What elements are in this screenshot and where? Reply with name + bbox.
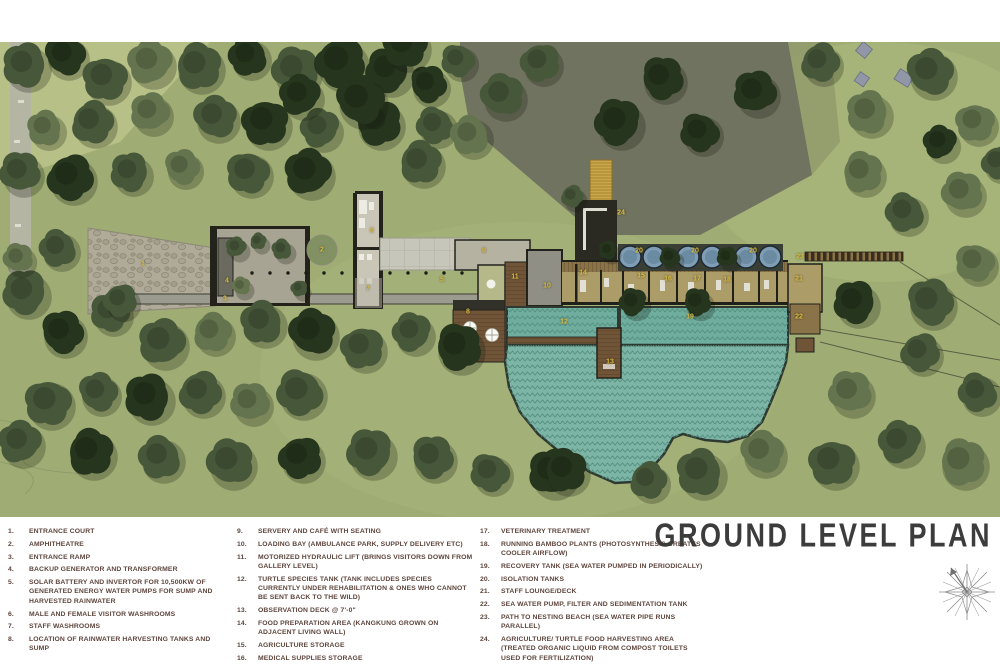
legend-item-text: AMPHITHEATRE — [29, 540, 230, 549]
legend-item-number: 11. — [237, 553, 258, 572]
legend-item-number: 15. — [237, 641, 258, 650]
legend-item: 2.AMPHITHEATRE — [8, 540, 230, 549]
legend-item: 14.FOOD PREPARATION AREA (KANGKUNG GROWN… — [237, 619, 475, 638]
legend-item-text: STAFF WASHROOMS — [29, 622, 230, 631]
legend-item-text: RECOVERY TANK (SEA WATER PUMPED IN PERIO… — [501, 562, 708, 571]
legend-item: 16.MEDICAL SUPPLIES STORAGE — [237, 654, 475, 663]
legend-item-number: 18. — [480, 540, 501, 559]
legend-item-number: 19. — [480, 562, 501, 571]
legend-item-number: 16. — [237, 654, 258, 663]
legend-item-text: BACKUP GENERATOR AND TRANSFORMER — [29, 565, 230, 574]
legend-item-number: 9. — [237, 527, 258, 536]
legend-item-text: SOLAR BATTERY AND INVERTOR FOR 10,500KW … — [29, 578, 230, 606]
legend-item-text: ENTRANCE COURT — [29, 527, 230, 536]
legend-item-number: 2. — [8, 540, 29, 549]
legend-item: 5.SOLAR BATTERY AND INVERTOR FOR 10,500K… — [8, 578, 230, 606]
legend-item-text: OBSERVATION DECK @ 7'-0" — [258, 606, 475, 615]
legend-item-text: MOTORIZED HYDRAULIC LIFT (BRINGS VISITOR… — [258, 553, 475, 572]
legend-item-text: MEDICAL SUPPLIES STORAGE — [258, 654, 475, 663]
legend-item-text: ENTRANCE RAMP — [29, 553, 230, 562]
legend-item-text: MALE AND FEMALE VISITOR WASHROOMS — [29, 610, 230, 619]
legend-item: 24.AGRICULTURE/ TURTLE FOOD HARVESTING A… — [480, 635, 708, 663]
page-title: GROUND LEVEL PLAN — [654, 517, 992, 555]
legend-item-number: 14. — [237, 619, 258, 638]
legend-item-text: AGRICULTURE STORAGE — [258, 641, 475, 650]
legend-item-number: 4. — [8, 565, 29, 574]
legend-item: 21.STAFF LOUNGE/DECK — [480, 587, 708, 596]
legend-item-number: 3. — [8, 553, 29, 562]
legend-item-number: 23. — [480, 613, 501, 632]
legend-column-1: 1.ENTRANCE COURT2.AMPHITHEATRE3.ENTRANCE… — [8, 527, 230, 657]
site-plan-rendering — [0, 42, 1000, 517]
legend-item-text: AGRICULTURE/ TURTLE FOOD HARVESTING AREA… — [501, 635, 708, 663]
legend-item-number: 12. — [237, 575, 258, 603]
legend-item: 20.ISOLATION TANKS — [480, 575, 708, 584]
legend-item-text: ISOLATION TANKS — [501, 575, 708, 584]
legend-item-text: PATH TO NESTING BEACH (SEA WATER PIPE RU… — [501, 613, 708, 632]
legend-item-number: 7. — [8, 622, 29, 631]
compass-rose-icon — [933, 556, 1000, 628]
legend-item-number: 8. — [8, 635, 29, 654]
legend-item-number: 13. — [237, 606, 258, 615]
legend-item: 10.LOADING BAY (AMBULANCE PARK, SUPPLY D… — [237, 540, 475, 549]
legend-item: 19.RECOVERY TANK (SEA WATER PUMPED IN PE… — [480, 562, 708, 571]
legend-item-number: 10. — [237, 540, 258, 549]
legend-item-text: TURTLE SPECIES TANK (TANK INCLUDES SPECI… — [258, 575, 475, 603]
legend-item-number: 6. — [8, 610, 29, 619]
legend-item-text: LOCATION OF RAINWATER HARVESTING TANKS A… — [29, 635, 230, 654]
legend-item-text: STAFF LOUNGE/DECK — [501, 587, 708, 596]
legend-column-2: 9.SERVERY AND CAFÉ WITH SEATING10.LOADIN… — [237, 527, 475, 667]
legend-item: 13.OBSERVATION DECK @ 7'-0" — [237, 606, 475, 615]
legend-item-number: 21. — [480, 587, 501, 596]
legend-item-text: LOADING BAY (AMBULANCE PARK, SUPPLY DELI… — [258, 540, 475, 549]
legend-item: 1.ENTRANCE COURT — [8, 527, 230, 536]
legend-item-number: 1. — [8, 527, 29, 536]
legend-item: 12.TURTLE SPECIES TANK (TANK INCLUDES SP… — [237, 575, 475, 603]
legend-item: 4.BACKUP GENERATOR AND TRANSFORMER — [8, 565, 230, 574]
legend-item-number: 24. — [480, 635, 501, 663]
legend-item: 15.AGRICULTURE STORAGE — [237, 641, 475, 650]
legend-item: 9.SERVERY AND CAFÉ WITH SEATING — [237, 527, 475, 536]
legend-item-number: 20. — [480, 575, 501, 584]
legend-item-text: FOOD PREPARATION AREA (KANGKUNG GROWN ON… — [258, 619, 475, 638]
legend-item-text: SEA WATER PUMP, FILTER AND SEDIMENTATION… — [501, 600, 708, 609]
legend-item: 3.ENTRANCE RAMP — [8, 553, 230, 562]
legend-item-number: 22. — [480, 600, 501, 609]
legend-item: 7.STAFF WASHROOMS — [8, 622, 230, 631]
legend-item: 11.MOTORIZED HYDRAULIC LIFT (BRINGS VISI… — [237, 553, 475, 572]
legend-item-text: SERVERY AND CAFÉ WITH SEATING — [258, 527, 475, 536]
legend-item-number: 17. — [480, 527, 501, 536]
legend-item: 23.PATH TO NESTING BEACH (SEA WATER PIPE… — [480, 613, 708, 632]
legend-item: 8.LOCATION OF RAINWATER HARVESTING TANKS… — [8, 635, 230, 654]
legend-item: 22.SEA WATER PUMP, FILTER AND SEDIMENTAT… — [480, 600, 708, 609]
legend-item: 6.MALE AND FEMALE VISITOR WASHROOMS — [8, 610, 230, 619]
legend-item-number: 5. — [8, 578, 29, 606]
